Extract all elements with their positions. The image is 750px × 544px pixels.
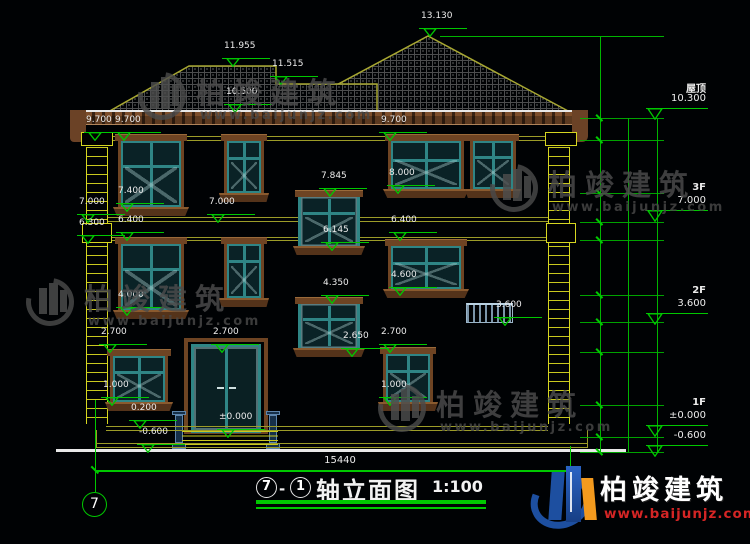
title-axis-dash: - bbox=[279, 480, 285, 498]
elevation-marker-value: 3.600 bbox=[496, 300, 522, 310]
elevation-marker-triangle-icon bbox=[221, 429, 235, 438]
floor-marker-triangle-icon bbox=[647, 313, 663, 325]
watermark-brand-name: 柏竣建筑 bbox=[436, 382, 584, 424]
watermark-url: www.baijunjz.com bbox=[88, 314, 261, 329]
elevation-marker: 0.200 bbox=[126, 402, 182, 429]
elevation-marker-value: 0.200 bbox=[131, 403, 157, 413]
elevation-marker: 7.000 bbox=[204, 196, 260, 223]
watermark-building-bar bbox=[172, 84, 179, 106]
watermark-building-bar bbox=[39, 288, 47, 314]
floor-level-marker: 2F 3.600 bbox=[646, 285, 708, 325]
title-axis-circle-start: 7 bbox=[256, 477, 277, 498]
elevation-marker-triangle-icon bbox=[498, 317, 512, 326]
elevation-marker-triangle-icon bbox=[88, 132, 102, 141]
watermark-building-bar bbox=[524, 176, 531, 198]
elevation-marker-value: 2.650 bbox=[343, 331, 369, 341]
watermark: 柏竣建筑 www.baijunjz.com bbox=[26, 276, 286, 340]
floor-name: 1F bbox=[692, 397, 706, 408]
elevation-marker-value: 6.400 bbox=[391, 215, 417, 225]
quoin-corbel-right bbox=[546, 223, 576, 243]
elevation-marker-triangle-icon bbox=[141, 444, 155, 453]
door-handle-left bbox=[217, 387, 224, 389]
elevation-marker-triangle-icon bbox=[391, 185, 405, 194]
title-underline-thick bbox=[256, 500, 486, 504]
elevation-marker-value: 7.400 bbox=[118, 186, 144, 196]
watermark: 柏竣建筑 www.baijunjz.com bbox=[490, 162, 750, 226]
floor-elevation: 10.300 bbox=[671, 93, 706, 104]
elevation-marker-triangle-icon bbox=[325, 295, 339, 304]
elevation-marker: 6.145 bbox=[318, 224, 374, 251]
elevation-marker-triangle-icon bbox=[345, 348, 359, 357]
watermark-url: www.baijunjz.com bbox=[200, 108, 373, 123]
window-lintel bbox=[221, 237, 267, 244]
watermark-building-bar bbox=[161, 77, 170, 109]
elevation-marker: 3.600 bbox=[491, 299, 547, 326]
elevation-marker-triangle-icon bbox=[117, 132, 131, 141]
watermark-brand-name: 柏竣建筑 bbox=[84, 276, 232, 318]
watermark-url: www.baijunjz.com bbox=[552, 200, 725, 215]
elevation-marker-triangle-icon bbox=[81, 235, 95, 244]
elevation-marker: ±0.000 bbox=[214, 411, 270, 438]
elevation-marker-value: 6.300 bbox=[79, 218, 105, 228]
floor-name: 2F bbox=[692, 285, 706, 296]
elevation-marker-value: 11.955 bbox=[224, 41, 256, 51]
elevation-marker: 8.000 bbox=[384, 167, 440, 194]
watermark-building-bar bbox=[503, 174, 511, 200]
drawing-scale: 1:100 bbox=[432, 477, 483, 496]
watermark-url: www.baijunjz.com bbox=[440, 420, 613, 435]
bottom-dim-value: 15440 bbox=[300, 455, 380, 466]
elevation-marker-triangle-icon bbox=[226, 58, 240, 67]
brand-building-bar-orange bbox=[581, 478, 597, 520]
elevation-marker: -0.600 bbox=[134, 426, 190, 453]
window-mullion-h bbox=[229, 157, 259, 160]
elevation-marker-value: 7.000 bbox=[79, 197, 105, 207]
watermark: 柏竣建筑 www.baijunjz.com bbox=[378, 382, 638, 446]
dim-tick-line bbox=[580, 240, 664, 241]
floor-marker-triangle-icon bbox=[647, 445, 663, 457]
elevation-marker: 4.350 bbox=[318, 277, 374, 304]
window-casement-marks bbox=[231, 162, 257, 189]
watermark-building-bar bbox=[151, 82, 159, 108]
title-underline-thin bbox=[256, 507, 486, 509]
elevation-marker: 7.845 bbox=[316, 170, 372, 197]
dim-tick-line bbox=[580, 140, 664, 141]
watermark-building-bar bbox=[513, 169, 522, 201]
window-mullion-h bbox=[303, 212, 355, 215]
elevation-marker-value: 9.700 bbox=[86, 115, 112, 125]
window-lintel bbox=[221, 134, 267, 141]
floor-elevation: -0.600 bbox=[674, 430, 706, 441]
elevation-marker-value: 4.600 bbox=[391, 270, 417, 280]
watermark-building-bar bbox=[401, 389, 410, 421]
axis-bubble-7: 7 bbox=[82, 492, 107, 517]
elevation-marker-triangle-icon bbox=[215, 344, 229, 353]
floor-marker-triangle-icon bbox=[647, 108, 663, 120]
elevation-marker-triangle-icon bbox=[323, 188, 337, 197]
elevation-marker-value: 7.000 bbox=[209, 197, 235, 207]
elevation-marker-triangle-icon bbox=[105, 397, 119, 406]
brand-url: www.baijunjz.com bbox=[604, 506, 750, 522]
watermark-brand-name: 柏竣建筑 bbox=[548, 162, 696, 204]
elevation-marker: 13.130 bbox=[416, 10, 472, 37]
watermark-building-bar bbox=[412, 396, 419, 418]
elevation-marker-value: 8.000 bbox=[389, 168, 415, 178]
quoin-cap-right bbox=[545, 132, 577, 146]
elevation-marker-value: -0.600 bbox=[139, 427, 168, 437]
axis-extension-line bbox=[95, 400, 96, 492]
elevation-marker: 6.300 bbox=[74, 217, 130, 244]
elevation-marker-triangle-icon bbox=[103, 344, 117, 353]
watermark-building-bar bbox=[391, 394, 399, 420]
elevation-marker: 2.650 bbox=[338, 330, 394, 357]
dim-tick-line bbox=[580, 352, 664, 353]
elevation-marker-value: ±0.000 bbox=[219, 412, 252, 422]
elevation-marker-value: 9.700 bbox=[115, 115, 141, 125]
window-mullion-h bbox=[229, 260, 259, 263]
watermark-building-bar bbox=[60, 290, 67, 312]
watermark-building-bar bbox=[49, 283, 58, 315]
cad-elevation-drawing: 15440 13.130 11.955 11.515 10.500 9.700 … bbox=[0, 0, 750, 544]
elevation-marker-value: 11.515 bbox=[272, 59, 304, 69]
brand-building-bar-blue bbox=[566, 466, 581, 522]
watermark: 柏竣建筑 www.baijunjz.com bbox=[138, 70, 398, 134]
elevation-marker-triangle-icon bbox=[325, 242, 339, 251]
window-lintel bbox=[467, 134, 519, 141]
elevation-marker-triangle-icon bbox=[393, 287, 407, 296]
elevation-marker-triangle-icon bbox=[423, 28, 437, 37]
plinth-edge-left bbox=[96, 430, 97, 447]
brand-logo: 柏竣建筑 www.baijunjz.com bbox=[528, 462, 750, 542]
elevation-marker-value: 6.145 bbox=[323, 225, 349, 235]
brand-name: 柏竣建筑 bbox=[600, 468, 728, 507]
floor-elevation: 3.600 bbox=[677, 298, 706, 309]
floor-level-marker: 屋顶 10.300 bbox=[646, 80, 708, 120]
window-mullion-h bbox=[475, 156, 511, 159]
elevation-marker-value: 13.130 bbox=[421, 11, 453, 21]
floor-level-marker: -0.600 bbox=[646, 417, 708, 457]
window-3f-left-small bbox=[224, 138, 264, 196]
watermark-brand-name: 柏竣建筑 bbox=[196, 70, 344, 112]
elevation-marker: 6.400 bbox=[386, 214, 442, 241]
elevation-marker-value: 7.845 bbox=[321, 171, 347, 181]
title-axis-circle-end: 1 bbox=[290, 477, 311, 498]
peak-extension-line bbox=[440, 36, 664, 37]
elevation-marker-triangle-icon bbox=[393, 232, 407, 241]
elevation-marker-value: 1.000 bbox=[103, 380, 129, 390]
elevation-marker: 4.600 bbox=[386, 269, 442, 296]
elevation-marker-value: 4.350 bbox=[323, 278, 349, 288]
door-handle-right bbox=[229, 387, 236, 389]
brand-building-window-slit bbox=[570, 472, 572, 512]
elevation-marker-triangle-icon bbox=[211, 214, 225, 223]
